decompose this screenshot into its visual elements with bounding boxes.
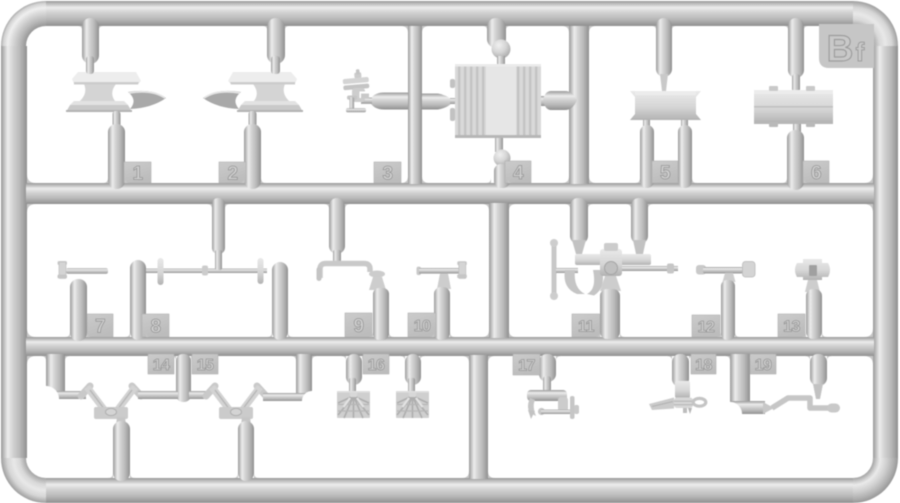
svg-text:3: 3: [382, 164, 392, 185]
svg-text:19: 19: [755, 357, 772, 374]
svg-text:8: 8: [150, 317, 160, 338]
svg-text:12: 12: [698, 319, 715, 336]
svg-text:17: 17: [518, 357, 535, 374]
svg-text:16: 16: [368, 357, 385, 374]
svg-text:6: 6: [811, 163, 821, 184]
svg-text:B: B: [827, 28, 854, 69]
svg-text:13: 13: [783, 318, 800, 335]
svg-text:10: 10: [414, 318, 431, 335]
svg-text:15: 15: [197, 357, 214, 374]
svg-text:4: 4: [513, 163, 524, 184]
svg-text:2: 2: [227, 164, 237, 185]
svg-text:18: 18: [695, 357, 712, 374]
svg-text:5: 5: [660, 163, 671, 184]
svg-text:1: 1: [132, 164, 143, 185]
svg-text:14: 14: [153, 357, 170, 374]
svg-text:7: 7: [95, 317, 105, 338]
svg-text:f: f: [856, 37, 865, 67]
svg-text:9: 9: [353, 316, 363, 337]
svg-text:11: 11: [578, 318, 595, 335]
